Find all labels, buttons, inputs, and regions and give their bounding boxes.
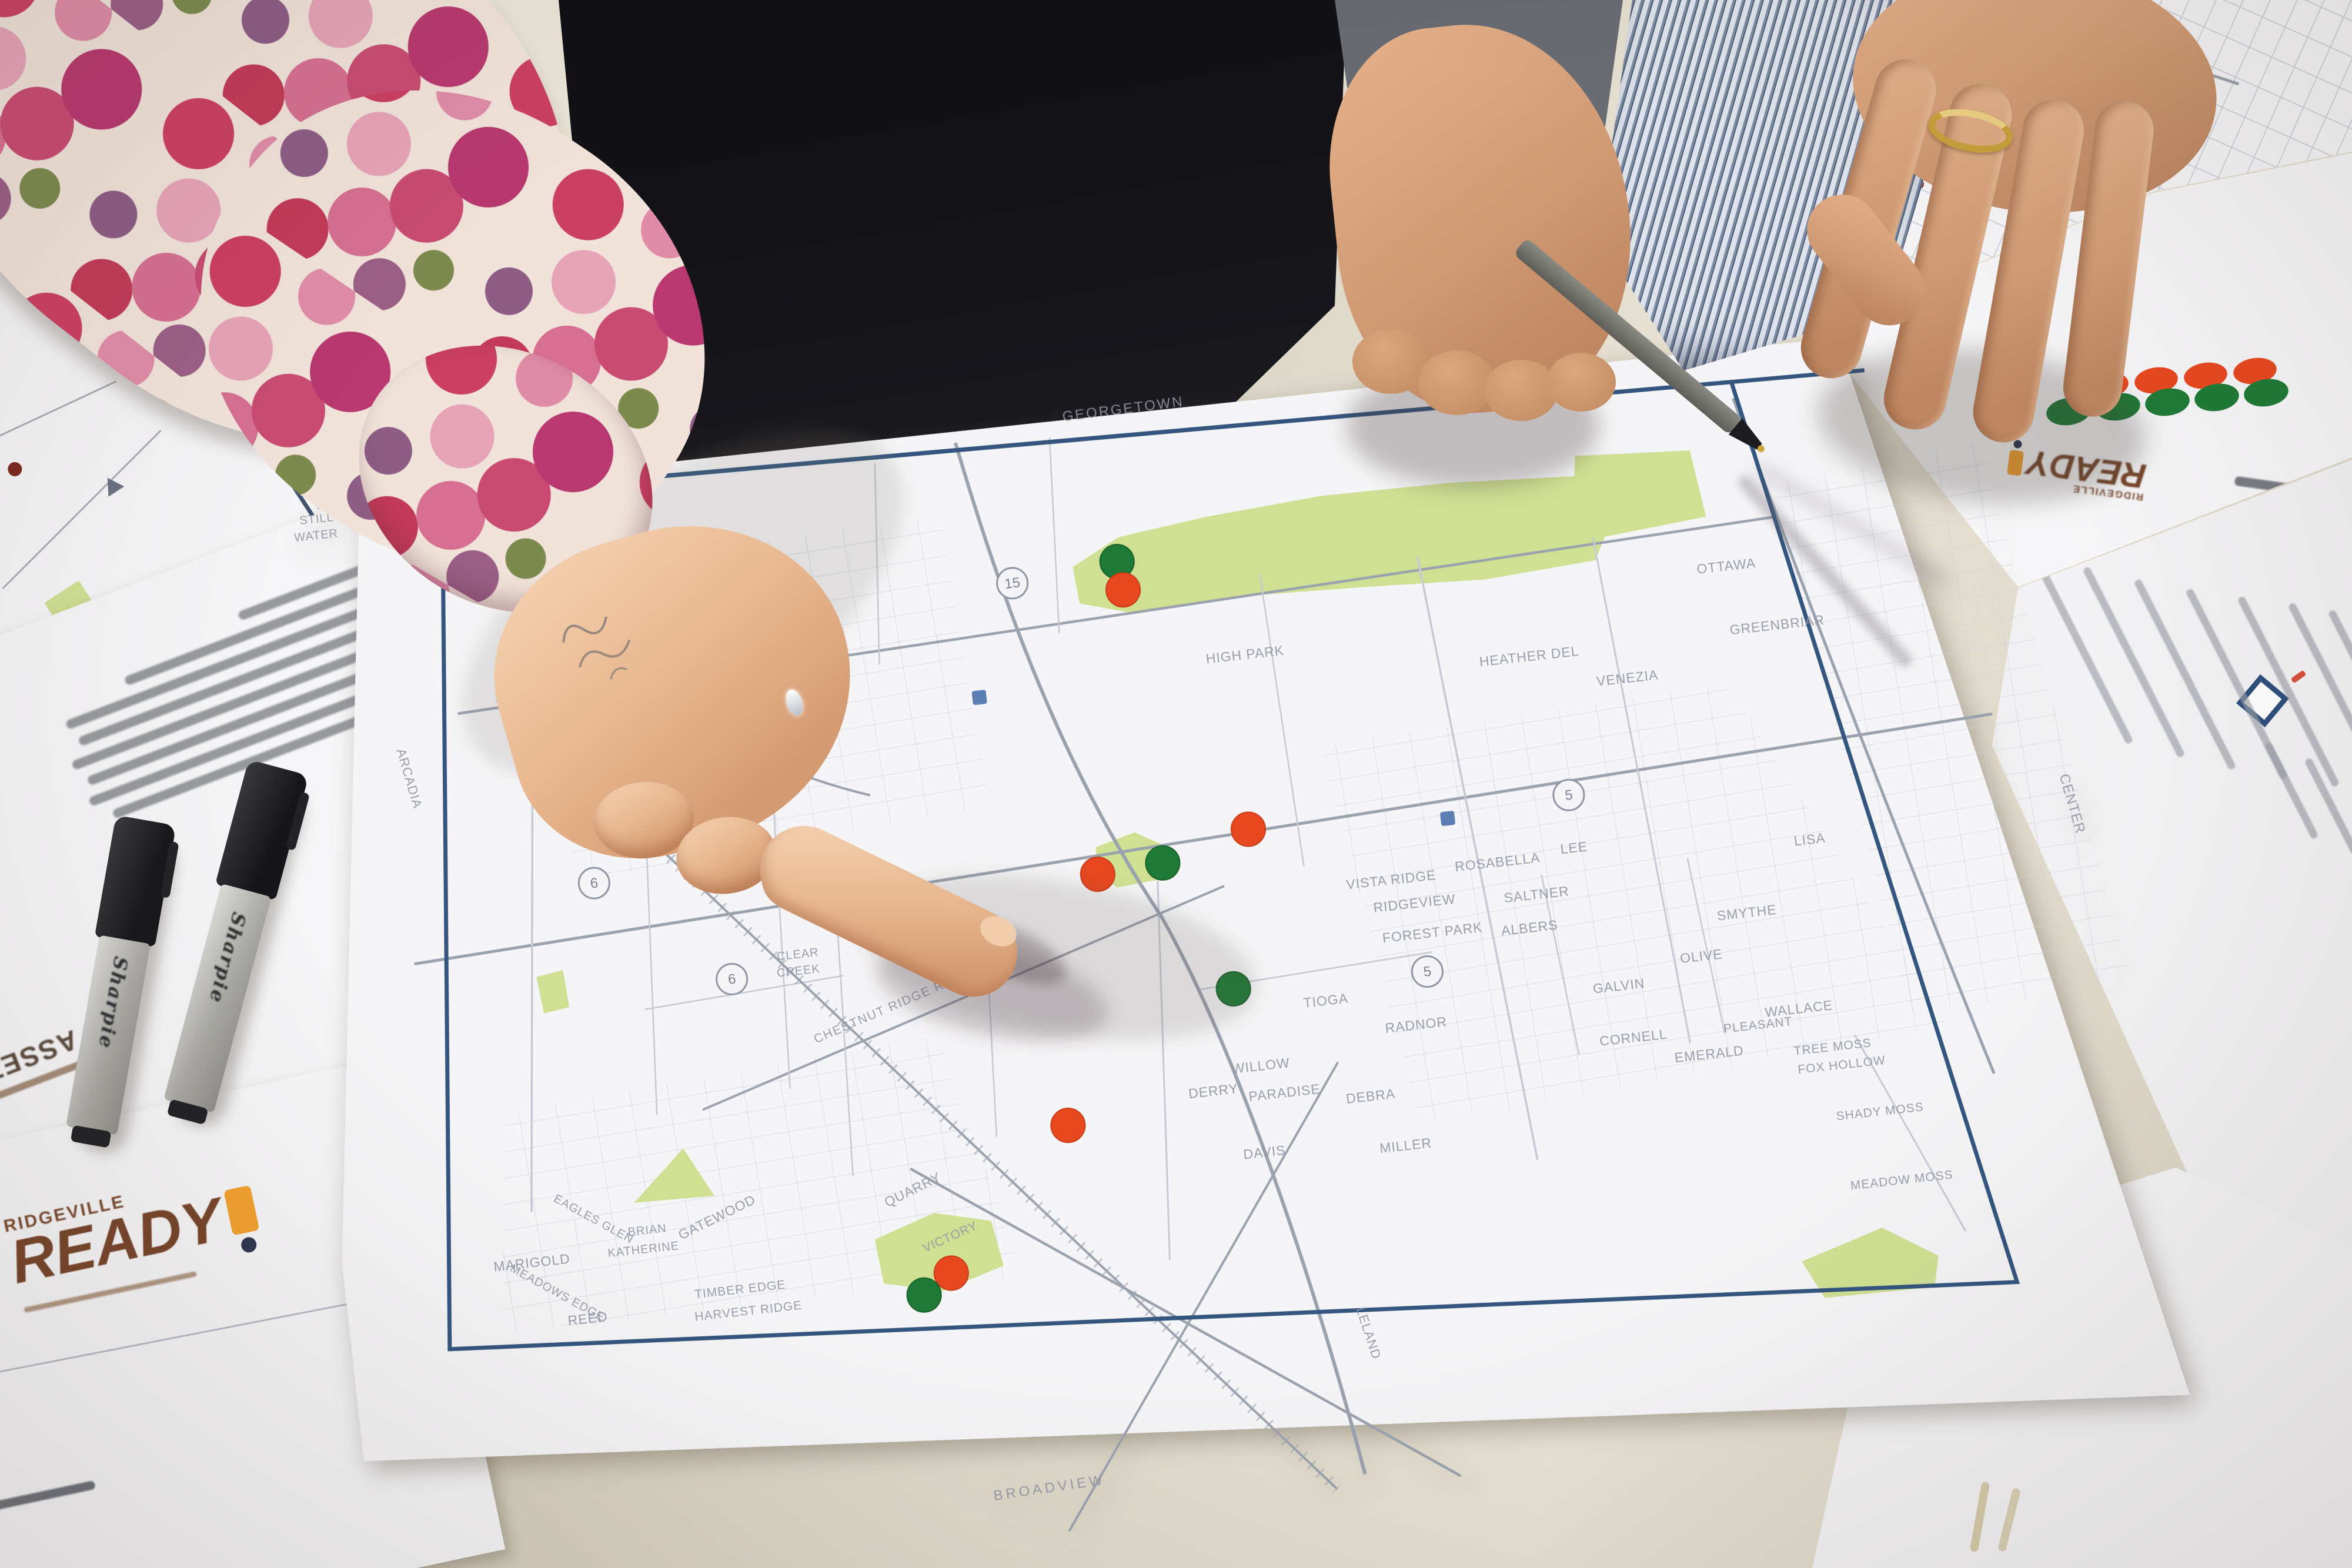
map-fragment-road	[2, 430, 162, 589]
knuckle	[1484, 360, 1558, 421]
text-line-bar	[0, 1384, 242, 1443]
logo-bang-icon	[223, 1185, 263, 1255]
street-label: BROADVIEW	[993, 1472, 1107, 1504]
street-label: WATER	[293, 527, 339, 544]
map-fragment-triangle-icon	[99, 473, 124, 497]
photo-scene: ASSETS AND RIDGEVILLE READY	[0, 0, 2352, 1568]
transit-icon	[1440, 811, 1455, 826]
map-fragment-dot	[5, 459, 25, 479]
route-shield-number: 6	[589, 875, 599, 891]
text-line-bar	[0, 1480, 96, 1521]
street-label: LEE	[1559, 838, 1588, 857]
knuckle	[1546, 353, 1616, 412]
red-tick-mark	[2290, 670, 2306, 683]
route-shield-number: 6	[727, 971, 737, 988]
transit-icon	[971, 690, 987, 705]
ridgeville-ready-logo: RIDGEVILLE READY	[2, 1165, 263, 1301]
knuckle	[1418, 350, 1495, 415]
knuckle	[1352, 329, 1429, 394]
right-hand-group	[1770, 0, 2276, 574]
marker-brand-text: Sharpie	[205, 910, 250, 1007]
highlighter-marks	[1970, 1482, 2064, 1564]
route-shield-number: 5	[1564, 787, 1573, 804]
route-shield-number: 15	[1004, 575, 1021, 593]
marker-brand-text: Sharpie	[94, 955, 132, 1051]
route-shield-number: 5	[1422, 964, 1432, 980]
